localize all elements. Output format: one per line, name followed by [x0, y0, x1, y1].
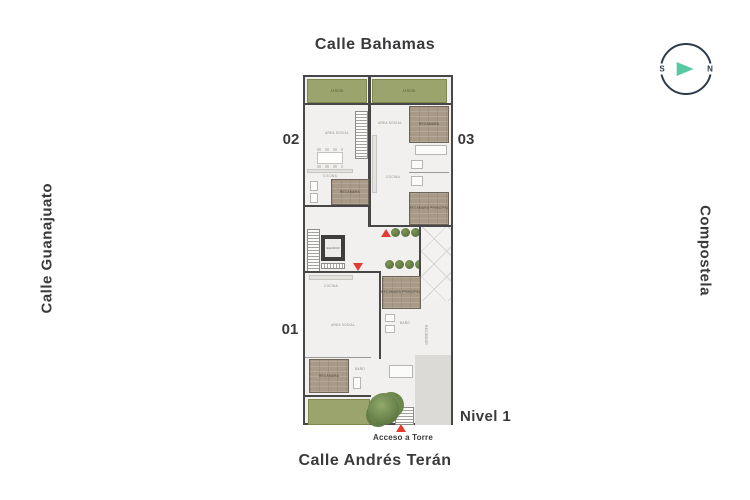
arrow-down-icon	[353, 263, 363, 271]
room-label-bano-02: BAÑO	[355, 367, 365, 370]
kitchen-counter-03	[372, 135, 377, 193]
kitchen-counter-01	[309, 275, 353, 280]
closet-unit03	[415, 145, 447, 155]
compass-icon: S N	[660, 43, 712, 95]
entry-walk	[415, 355, 451, 425]
bath-fixture	[385, 325, 395, 333]
street-label-top: Calle Bahamas	[0, 36, 750, 54]
tree-icon	[368, 393, 400, 425]
bath-fixture	[310, 181, 318, 191]
bath-fixture	[353, 377, 361, 389]
room-label-recibidor: RECIBIDOR	[424, 325, 427, 345]
access-label: Acceso a Torre	[368, 433, 438, 442]
dining-chairs	[317, 148, 343, 151]
room-label-area-social-01: AREA SOCIAL	[331, 323, 355, 326]
floor-plan: JARDÍN JARDÍN AREA SOCIAL COCINA RECAMAR…	[303, 75, 453, 425]
room-label-jardin-left: JARDÍN	[331, 89, 344, 92]
room-label-area-social-03: AREA SOCIAL	[378, 121, 402, 124]
room-label-cocina-02: COCINA	[323, 174, 337, 177]
stairs-unit02	[355, 111, 368, 159]
street-label-bottom: Calle Andrés Terán	[0, 452, 750, 470]
wall	[409, 172, 449, 173]
compass-needle-icon	[677, 62, 694, 76]
wall	[305, 271, 381, 273]
unit-label-03: 03	[456, 131, 476, 148]
dining-chairs	[317, 165, 343, 168]
garden-strip-bottom	[308, 399, 370, 425]
stairs-core	[307, 229, 320, 273]
room-label-recamara-02: RECAMARA	[340, 190, 360, 193]
utility-box	[389, 365, 413, 378]
kitchen-counter-02	[307, 169, 353, 173]
room-label-elevador: ELEVADOR	[327, 246, 340, 249]
wall	[379, 271, 381, 359]
street-label-left: Calle Guanajuato	[39, 184, 56, 314]
bath-fixture	[411, 160, 423, 169]
room-label-recamara-principal-01: RECAMARA PRINCIPAL	[381, 290, 421, 293]
room-label-cocina-01: COCINA	[324, 284, 338, 287]
street-label-right: Compostela	[697, 201, 714, 301]
wall	[305, 395, 371, 397]
wall	[305, 103, 451, 105]
unit-label-01: 01	[280, 321, 300, 338]
dining-table	[317, 152, 343, 164]
floor-plan-page: Calle Bahamas Calle Guanajuato Compostel…	[0, 0, 750, 500]
room-label-recamara-01: RECAMARA	[319, 374, 339, 377]
elevator-cab: ELEVADOR	[325, 239, 341, 257]
compass-south-label: S	[657, 64, 666, 75]
level-label: Nivel 1	[460, 408, 511, 425]
wall	[305, 357, 371, 358]
bath-fixture	[310, 193, 318, 203]
unit-label-02: 02	[281, 131, 301, 148]
wall	[305, 205, 371, 207]
room-label-recamara-principal-03: RECAMARA PRINCIPAL	[409, 206, 449, 209]
room-label-cocina-03: COCINA	[386, 175, 400, 178]
room-label-area-social-02: AREA SOCIAL	[325, 131, 349, 134]
room-label-recamara-03: RECAMARA	[419, 122, 439, 125]
stairs-core-lower	[321, 263, 345, 269]
arrow-up-icon	[381, 229, 391, 237]
patio-void	[421, 227, 451, 301]
compass-north-label: N	[705, 64, 715, 75]
room-label-jardin-right: JARDÍN	[403, 89, 416, 92]
bath-fixture	[411, 176, 423, 186]
bath-fixture	[385, 314, 395, 322]
room-label-bano-01: BAÑO	[400, 321, 410, 324]
access-arrow-up-icon	[396, 424, 406, 432]
